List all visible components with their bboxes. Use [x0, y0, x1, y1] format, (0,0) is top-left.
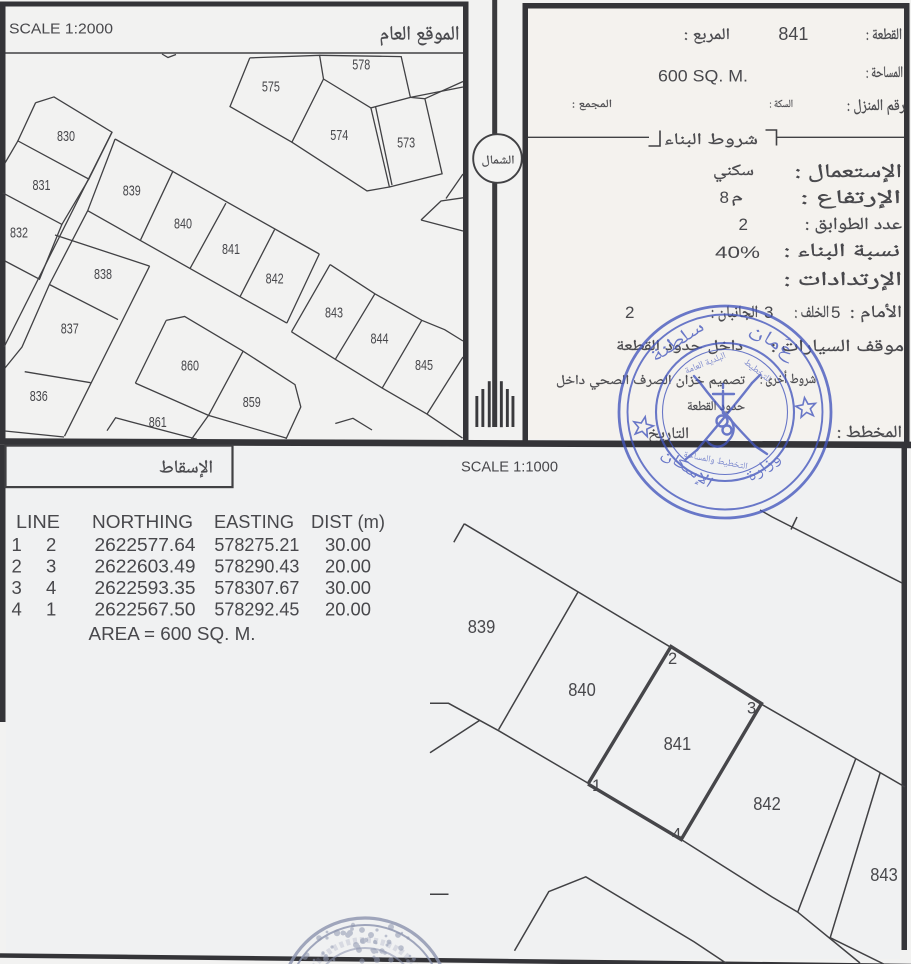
- svg-text:574: 574: [330, 127, 348, 144]
- svg-text:1: 1: [46, 599, 56, 620]
- svg-text:3: 3: [747, 700, 756, 718]
- svg-text:837: 837: [61, 321, 79, 338]
- svg-text:2622577.64: 2622577.64: [95, 534, 196, 555]
- svg-text:2: 2: [46, 534, 56, 555]
- svg-text:4: 4: [46, 577, 56, 598]
- svg-text:843: 843: [325, 305, 343, 322]
- svg-text:839: 839: [468, 617, 496, 637]
- svg-text:40%: 40%: [715, 243, 760, 262]
- svg-text:578: 578: [352, 57, 370, 74]
- svg-text:2622593.35: 2622593.35: [95, 577, 196, 598]
- svg-text:578275.21: 578275.21: [214, 534, 299, 555]
- svg-text:3: 3: [46, 556, 56, 577]
- svg-text:EASTING: EASTING: [214, 511, 294, 532]
- svg-text:578290.43: 578290.43: [214, 556, 299, 577]
- svg-text:839: 839: [123, 183, 141, 200]
- svg-text:841: 841: [778, 24, 808, 44]
- svg-text:844: 844: [371, 331, 389, 348]
- svg-text:NORTHING: NORTHING: [92, 511, 193, 532]
- svg-text:832: 832: [10, 225, 28, 242]
- svg-text:LINE: LINE: [16, 511, 60, 532]
- svg-text:2622567.50: 2622567.50: [95, 599, 196, 620]
- svg-text:859: 859: [243, 394, 261, 411]
- svg-text:8: 8: [720, 188, 729, 207]
- svg-text:841: 841: [664, 734, 692, 754]
- svg-text:30.00: 30.00: [325, 577, 371, 598]
- svg-text:843: 843: [870, 865, 898, 885]
- svg-text:1: 1: [592, 777, 601, 795]
- svg-text:845: 845: [415, 357, 433, 374]
- svg-text:2: 2: [12, 556, 22, 577]
- svg-text:830: 830: [57, 128, 75, 145]
- svg-text:AREA = 600 SQ. M.: AREA = 600 SQ. M.: [89, 623, 256, 644]
- svg-text:575: 575: [262, 79, 280, 96]
- svg-text:3: 3: [12, 577, 22, 598]
- svg-text:2: 2: [668, 650, 677, 668]
- svg-text:2: 2: [625, 303, 634, 322]
- svg-text:4: 4: [672, 826, 681, 844]
- svg-text:DIST (m): DIST (m): [311, 511, 385, 532]
- svg-text:841: 841: [222, 241, 240, 258]
- svg-text:578307.67: 578307.67: [214, 577, 299, 598]
- svg-text:20.00: 20.00: [325, 556, 371, 577]
- svg-text:840: 840: [174, 216, 192, 233]
- svg-text:1: 1: [12, 534, 22, 555]
- svg-text:573: 573: [397, 134, 415, 151]
- svg-text:4: 4: [12, 599, 22, 620]
- svg-text:842: 842: [753, 794, 781, 814]
- svg-text:840: 840: [568, 680, 596, 700]
- svg-text:842: 842: [266, 271, 284, 288]
- svg-text:578292.45: 578292.45: [214, 599, 299, 620]
- svg-text:SCALE 1:1000: SCALE 1:1000: [461, 460, 558, 476]
- svg-text:2622603.49: 2622603.49: [95, 556, 196, 577]
- svg-text:838: 838: [94, 266, 112, 283]
- svg-text:20.00: 20.00: [325, 599, 371, 620]
- svg-text:600 SQ. M.: 600 SQ. M.: [658, 68, 748, 86]
- svg-text:860: 860: [181, 358, 199, 375]
- svg-text:831: 831: [33, 177, 51, 194]
- svg-text:836: 836: [30, 388, 48, 405]
- svg-text:2: 2: [739, 215, 748, 234]
- svg-text:SCALE 1:2000: SCALE 1:2000: [9, 21, 113, 38]
- svg-text:861: 861: [149, 414, 167, 431]
- svg-text:5: 5: [831, 303, 840, 322]
- svg-text:30.00: 30.00: [325, 534, 371, 555]
